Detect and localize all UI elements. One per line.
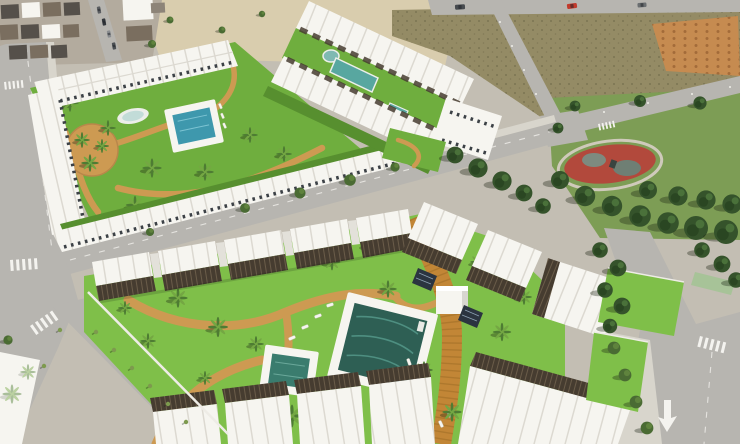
playground-surface	[582, 153, 606, 167]
car	[455, 4, 465, 10]
scene-canvas	[0, 0, 740, 444]
car	[637, 2, 646, 7]
playground-surface	[613, 160, 641, 176]
aerial-render	[0, 0, 740, 444]
apartment-block	[297, 386, 365, 444]
apartment-block	[225, 395, 293, 444]
apartment-block	[369, 377, 435, 444]
